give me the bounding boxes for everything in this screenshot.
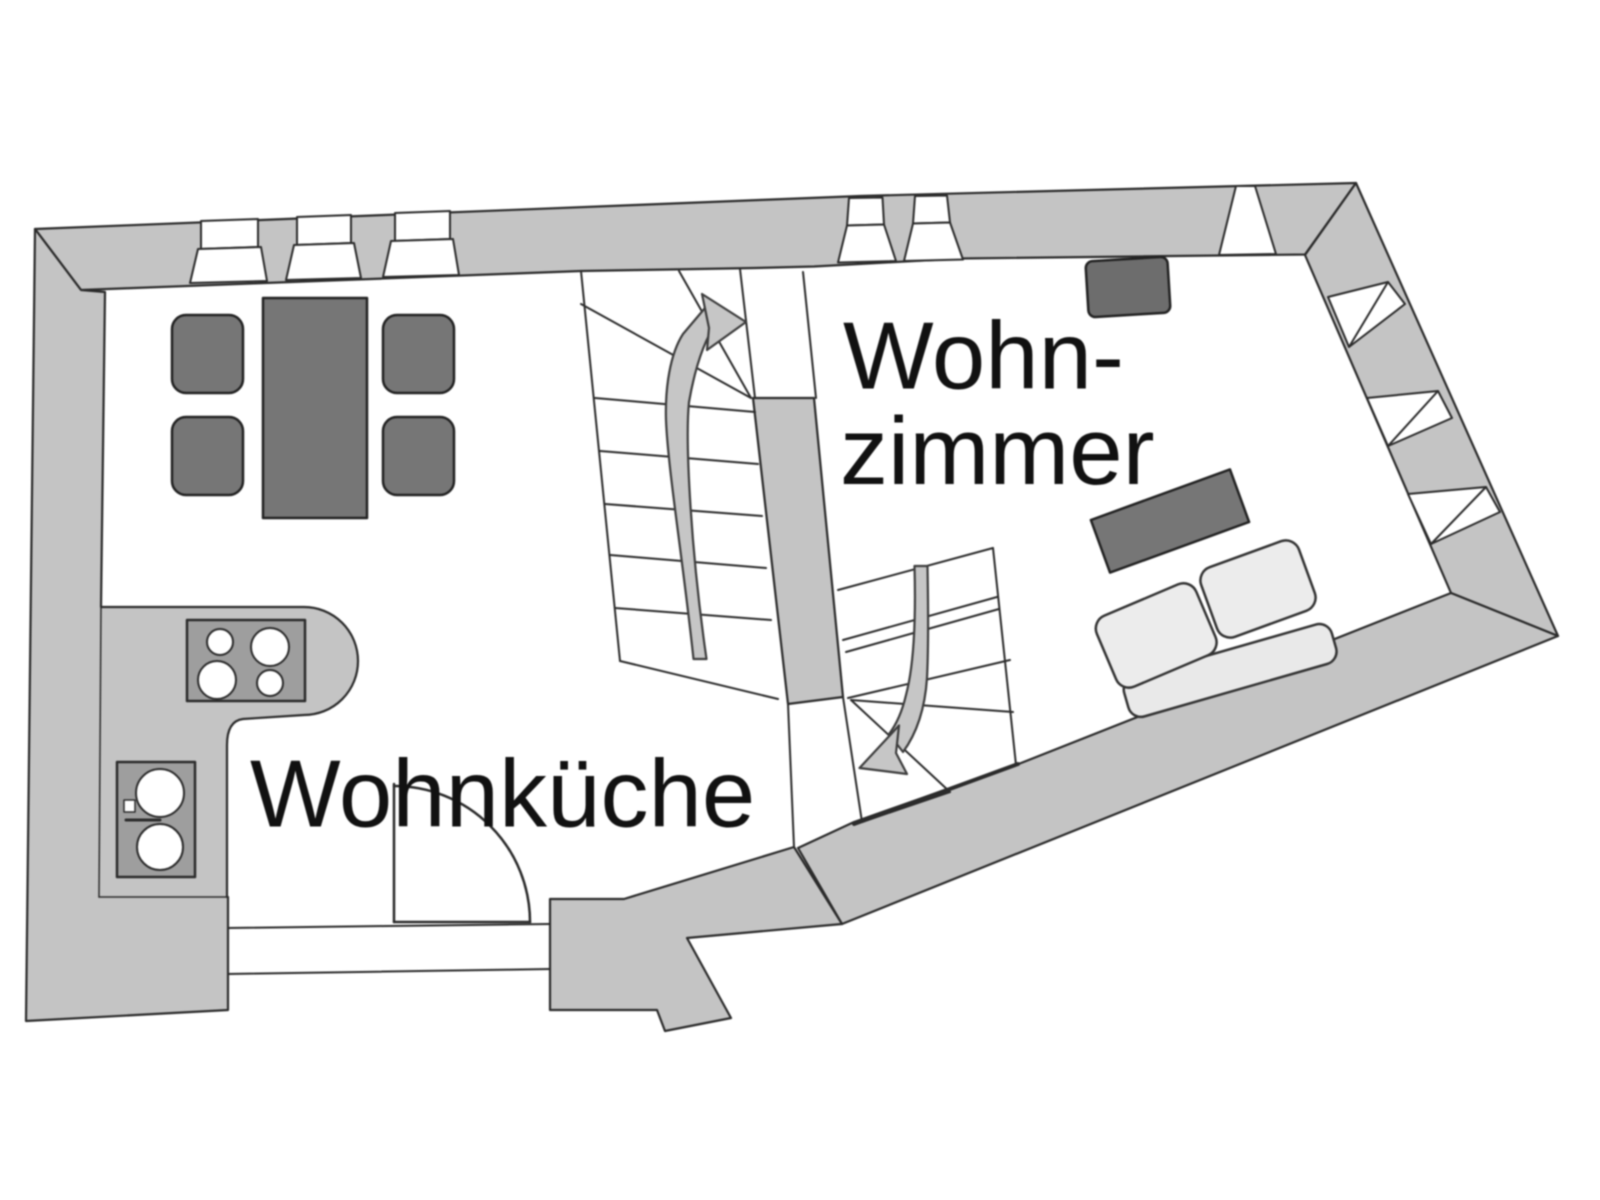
svg-text:Wohn-: Wohn-	[843, 303, 1124, 410]
svg-text:Wohnküche: Wohnküche	[250, 741, 755, 848]
svg-text:zimmer: zimmer	[840, 398, 1155, 505]
